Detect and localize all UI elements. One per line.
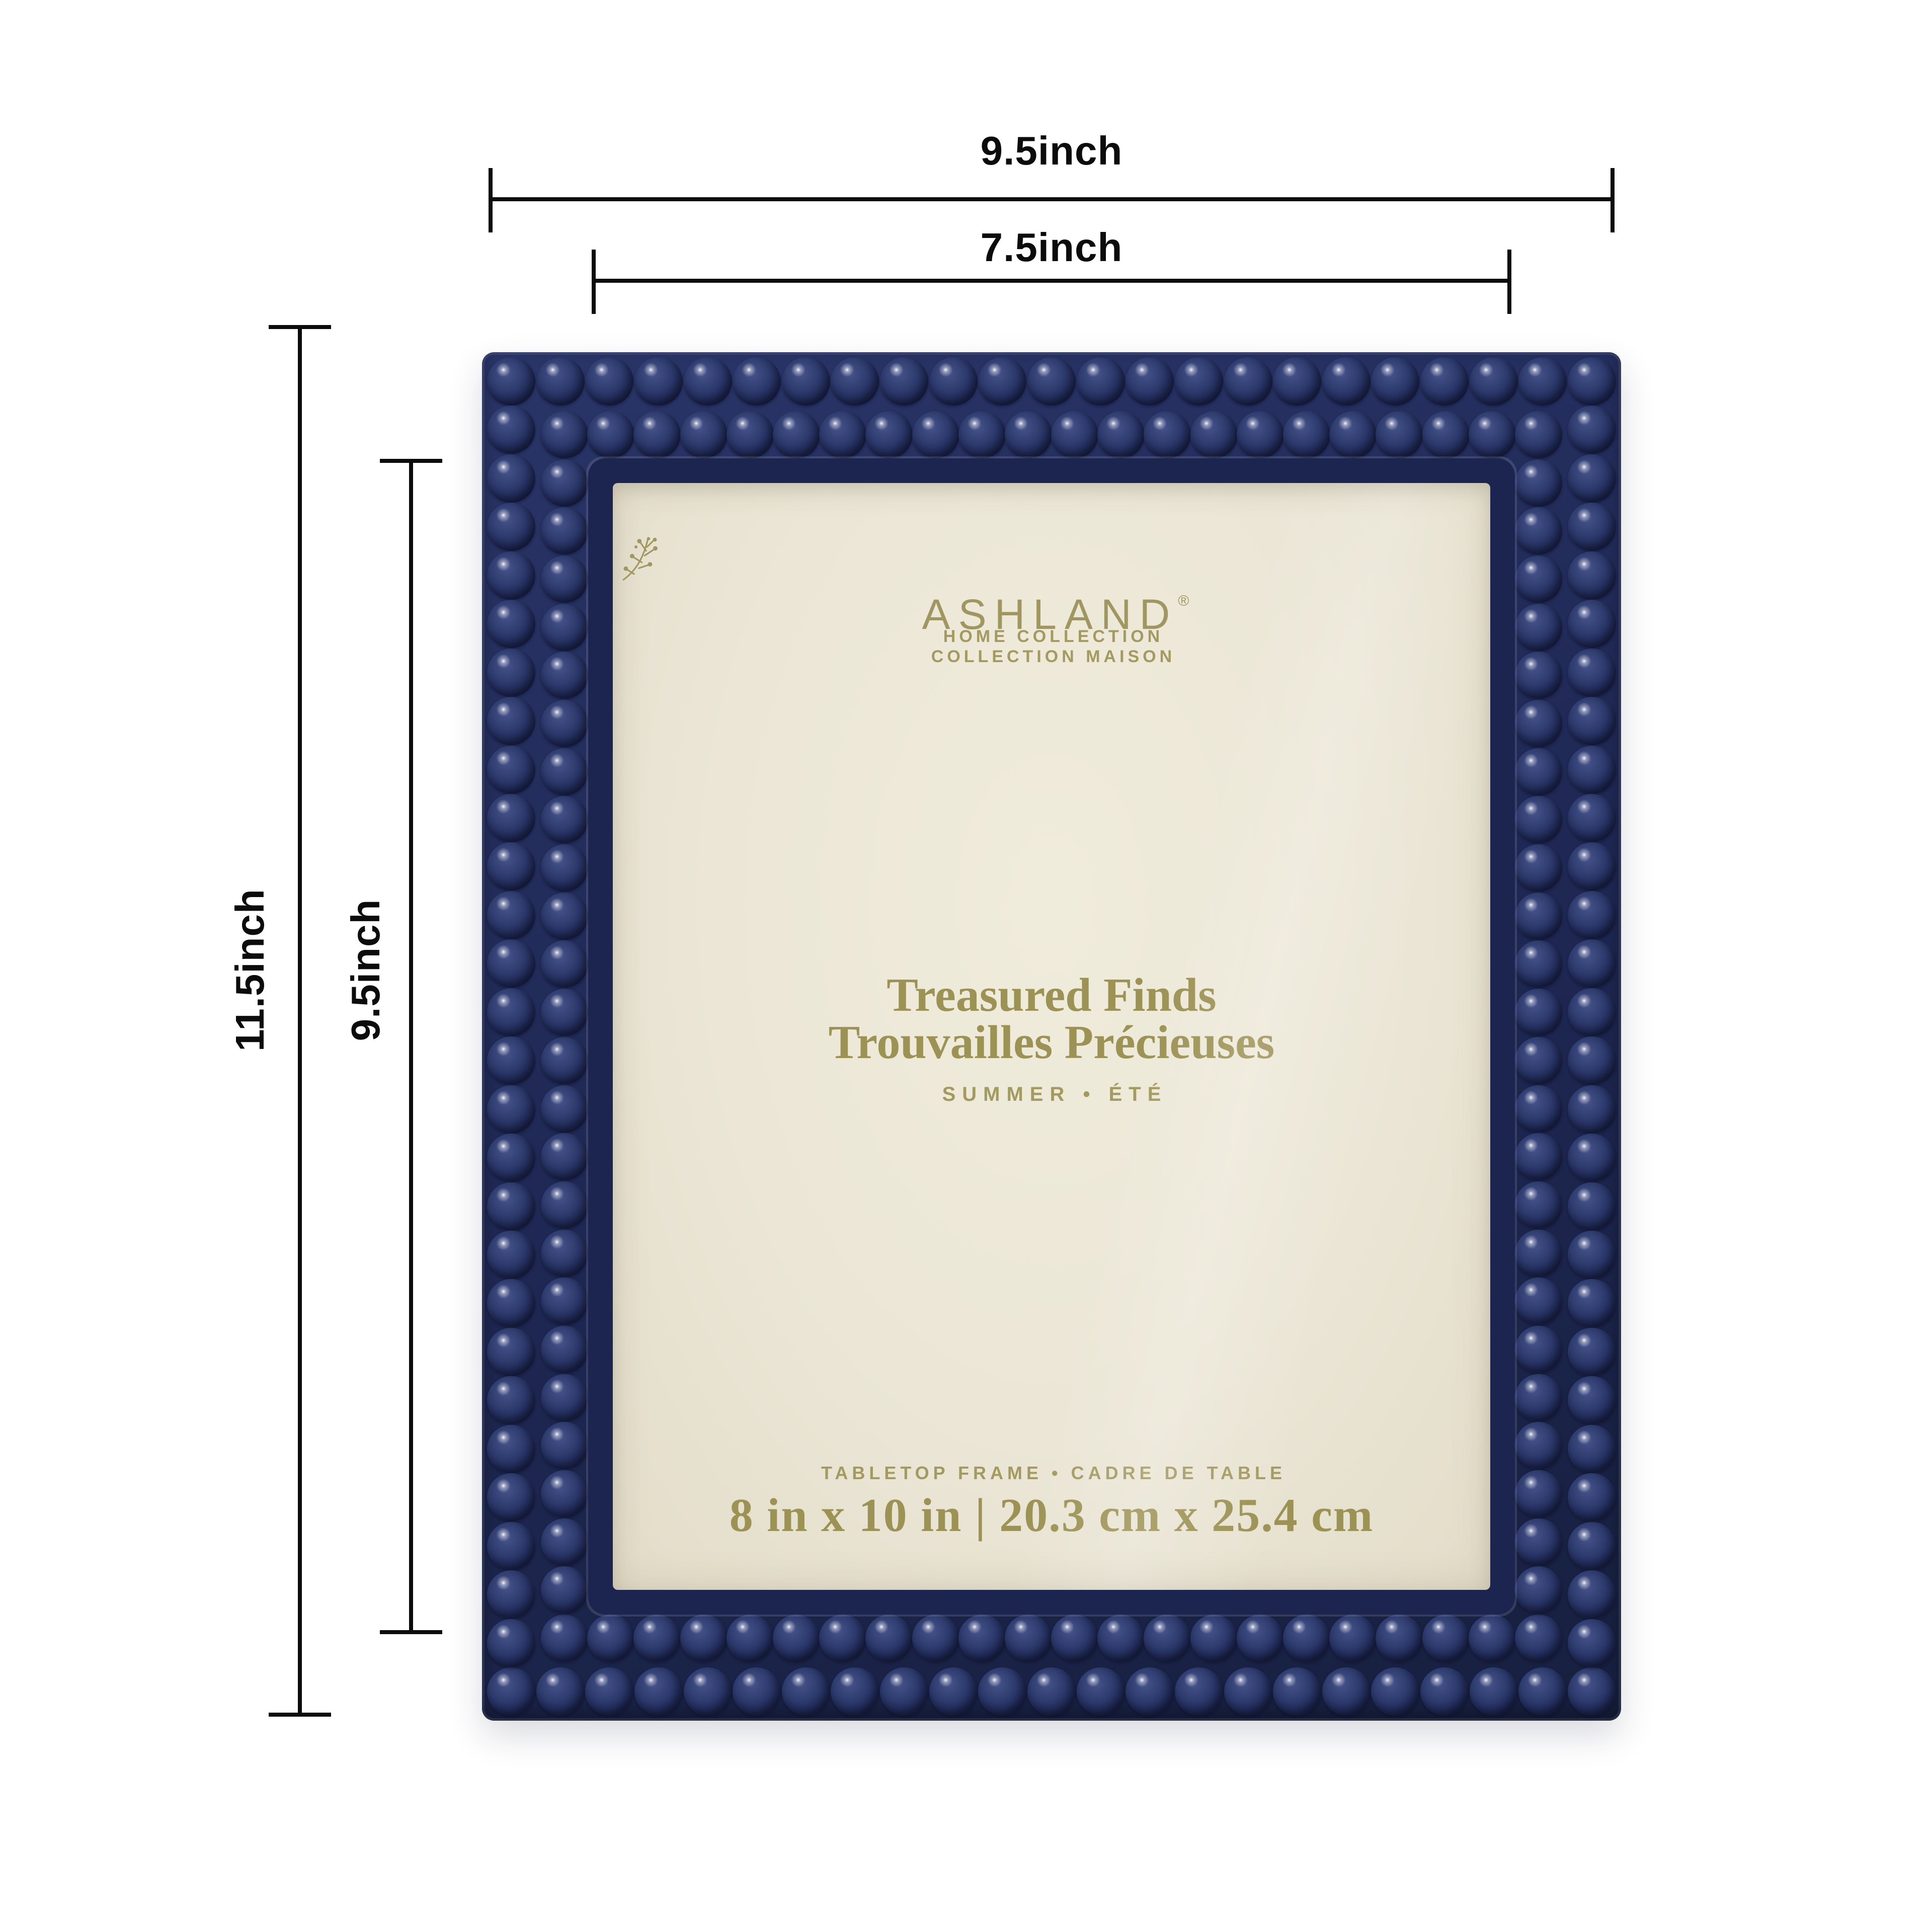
dimension-tick xyxy=(592,250,596,314)
frame-bead xyxy=(1515,1133,1562,1180)
frame-bead xyxy=(541,748,588,795)
frame-bead xyxy=(1237,1615,1284,1662)
frame-bead xyxy=(773,1615,820,1662)
frame-bead xyxy=(819,411,866,458)
frame-bead xyxy=(1515,1615,1562,1662)
frame-bead xyxy=(541,1566,588,1614)
frame-bead xyxy=(541,1181,588,1229)
frame-bead xyxy=(912,1615,959,1662)
frame-bead xyxy=(633,411,681,458)
frame-bead xyxy=(541,989,588,1036)
frame-bead xyxy=(1515,1277,1562,1325)
frame-bead xyxy=(1515,1085,1562,1133)
dimension-line-inner-width xyxy=(594,279,1509,283)
frame-bead xyxy=(1515,652,1562,699)
frame-bead xyxy=(773,411,820,458)
dimension-label-outer-height: 11.5inch xyxy=(229,764,271,1176)
insert-card: ASHLAND® HOME COLLECTION COLLECTION MAIS… xyxy=(613,483,1490,1590)
dimension-line-outer-height xyxy=(298,327,302,1717)
frame-bead xyxy=(541,555,588,603)
frame-bead xyxy=(1515,411,1562,458)
picture-frame: ASHLAND® HOME COLLECTION COLLECTION MAIS… xyxy=(482,352,1621,1721)
frame-bead xyxy=(819,1615,866,1662)
frame-bead xyxy=(1283,1615,1330,1662)
frame-bead xyxy=(541,1326,588,1373)
frame-type-line: TABLETOP FRAME • CADRE DE TABLE xyxy=(613,1462,1490,1484)
frame-bead xyxy=(1515,893,1562,940)
frame-bead xyxy=(727,1615,774,1662)
dimension-tick xyxy=(489,168,493,232)
frame-bead xyxy=(1422,411,1470,458)
dimension-label-inner-width: 7.5inch xyxy=(845,226,1258,269)
dimension-line-inner-height xyxy=(409,461,413,1634)
frame-bead xyxy=(633,1615,681,1662)
frame-bead xyxy=(1515,1518,1562,1566)
frame-bead xyxy=(1051,1615,1098,1662)
frame-bead xyxy=(1097,1615,1145,1662)
frame-bead xyxy=(541,1615,588,1662)
dimension-line-outer-width xyxy=(491,197,1613,201)
frame-bead xyxy=(541,940,588,988)
product-dimension-diagram: 9.5inch 7.5inch 11.5inch 9.5inch xyxy=(0,0,1932,1932)
frame-bead xyxy=(1237,411,1284,458)
frame-bead xyxy=(541,1422,588,1469)
frame-bead xyxy=(541,1470,588,1517)
frame-bead xyxy=(1515,459,1562,507)
frame-bead xyxy=(1005,1615,1052,1662)
frame-bead xyxy=(1515,700,1562,747)
dimension-tick xyxy=(269,1713,331,1717)
registered-mark: ® xyxy=(1178,593,1189,609)
frame-bead xyxy=(1515,1181,1562,1229)
frame-bead xyxy=(541,1277,588,1325)
season-line: SUMMER • ÉTÉ xyxy=(613,1083,1490,1106)
frame-bead xyxy=(1469,1615,1516,1662)
frame-bead xyxy=(1515,1422,1562,1469)
frame-bead xyxy=(541,459,588,507)
frame-bead xyxy=(1515,940,1562,988)
dimension-tick xyxy=(269,325,331,329)
frame-bead xyxy=(541,1518,588,1566)
frame-bead xyxy=(1051,411,1098,458)
frame-bead xyxy=(1376,411,1423,458)
frame-bead xyxy=(1283,411,1330,458)
brand-collection-fr: COLLECTION MAISON xyxy=(613,647,1490,667)
frame-size-line: 8 in x 10 in | 20.3 cm x 25.4 cm xyxy=(613,1490,1490,1541)
frame-bead xyxy=(1329,411,1377,458)
frame-bead xyxy=(541,604,588,651)
title-english: Treasured Finds xyxy=(613,970,1490,1020)
frame-bead xyxy=(1422,1615,1470,1662)
frame-bead xyxy=(1515,1037,1562,1084)
dimension-tick xyxy=(1507,250,1511,314)
frame-bead xyxy=(912,411,959,458)
frame-bead xyxy=(1515,1470,1562,1517)
frame-bead xyxy=(1515,748,1562,795)
frame-bead xyxy=(1190,1615,1238,1662)
frame-bead xyxy=(1515,507,1562,554)
frame-bead xyxy=(541,1037,588,1084)
frame-bead xyxy=(1515,555,1562,603)
frame-bead xyxy=(1144,1615,1191,1662)
frame-bead xyxy=(958,1615,1006,1662)
frame-bead xyxy=(865,1615,913,1662)
frame-bead xyxy=(1515,1374,1562,1421)
frame-bead xyxy=(1515,844,1562,892)
frame-bead xyxy=(541,700,588,747)
frame-bead xyxy=(958,411,1006,458)
frame-bead xyxy=(1376,1615,1423,1662)
frame-bead xyxy=(1515,1566,1562,1614)
frame-bead xyxy=(1469,411,1516,458)
frame-bead xyxy=(541,1133,588,1180)
frame-bead xyxy=(1144,411,1191,458)
dimension-tick xyxy=(380,459,442,463)
frame-bead xyxy=(541,1374,588,1421)
dimension-label-inner-height: 9.5inch xyxy=(345,764,387,1176)
frame-bead xyxy=(541,893,588,940)
brand-collection-en: HOME COLLECTION xyxy=(613,626,1490,647)
frame-bead xyxy=(1515,796,1562,843)
frame-bead xyxy=(541,844,588,892)
frame-bead xyxy=(1515,989,1562,1036)
dimension-tick xyxy=(380,1630,442,1634)
frame-bead xyxy=(1515,1230,1562,1277)
frame-bead xyxy=(680,1615,728,1662)
dimension-label-outer-width: 9.5inch xyxy=(845,130,1258,172)
frame-bead xyxy=(541,652,588,699)
frame-bead xyxy=(541,796,588,843)
frame-bead xyxy=(1515,1326,1562,1373)
frame-bead xyxy=(541,507,588,554)
frame-bead xyxy=(727,411,774,458)
frame-bead xyxy=(1515,604,1562,651)
frame-bead xyxy=(1329,1615,1377,1662)
title-french: Trouvailles Précieuses xyxy=(613,1017,1490,1068)
frame-bead xyxy=(587,411,634,458)
frame-bead xyxy=(541,1230,588,1277)
frame-bead xyxy=(541,411,588,458)
frame-bead xyxy=(1190,411,1238,458)
frame-bead xyxy=(680,411,728,458)
frame-bead xyxy=(1097,411,1145,458)
frame-bead xyxy=(865,411,913,458)
dimension-tick xyxy=(1611,168,1615,232)
frame-bead xyxy=(541,1085,588,1133)
frame-bead xyxy=(587,1615,634,1662)
frame-bead xyxy=(1005,411,1052,458)
